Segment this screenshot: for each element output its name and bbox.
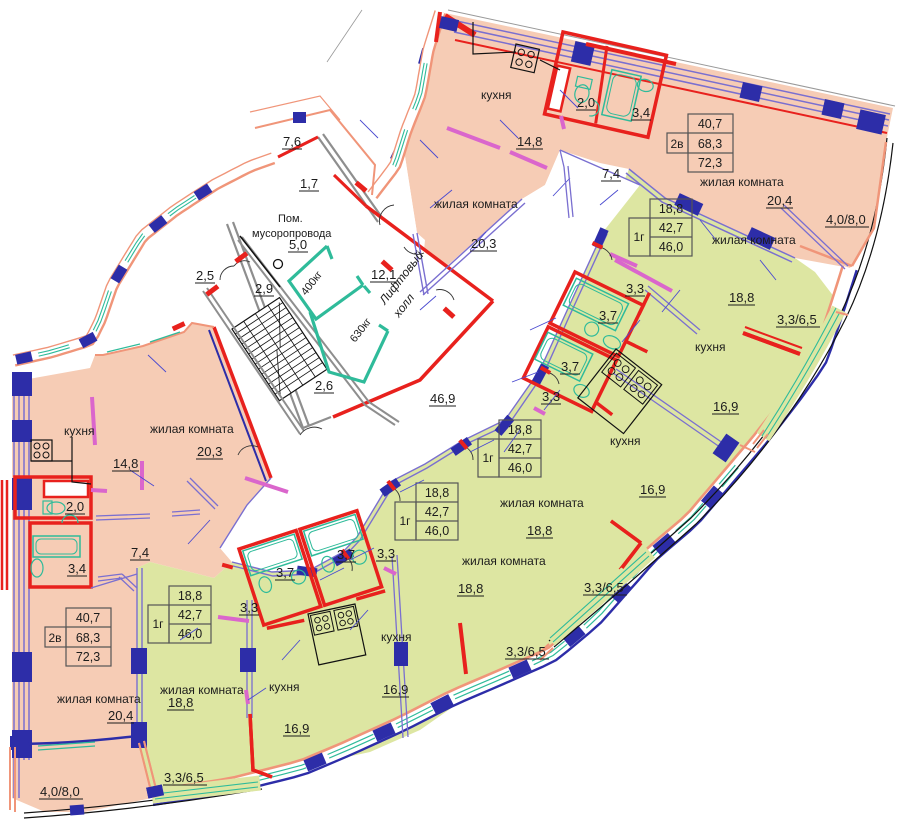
svg-text:2в: 2в [670, 137, 683, 151]
svg-text:2,9: 2,9 [255, 281, 273, 296]
svg-text:3,4: 3,4 [632, 105, 650, 120]
svg-text:3,3/6,5: 3,3/6,5 [777, 312, 817, 327]
svg-text:7,4: 7,4 [602, 166, 620, 181]
svg-text:18,8: 18,8 [508, 423, 532, 437]
svg-text:42,7: 42,7 [659, 221, 683, 235]
svg-text:4,0/8,0: 4,0/8,0 [826, 212, 866, 227]
svg-text:18,8: 18,8 [178, 589, 202, 603]
svg-text:3,7: 3,7 [276, 565, 294, 580]
svg-text:4,0/8,0: 4,0/8,0 [40, 784, 80, 799]
svg-text:42,7: 42,7 [178, 608, 202, 622]
svg-text:кухня: кухня [269, 680, 300, 694]
svg-text:жилая комната: жилая комната [150, 422, 234, 436]
svg-text:2в: 2в [48, 631, 61, 645]
svg-text:Пом.: Пом. [278, 213, 303, 225]
svg-text:1г: 1г [399, 514, 411, 528]
svg-text:20,3: 20,3 [471, 236, 496, 251]
svg-text:72,3: 72,3 [698, 156, 722, 170]
svg-text:18,8: 18,8 [659, 202, 683, 216]
svg-text:16,9: 16,9 [713, 399, 738, 414]
svg-text:5,0: 5,0 [289, 237, 307, 252]
svg-text:20,4: 20,4 [767, 193, 792, 208]
svg-text:3,3: 3,3 [626, 281, 644, 296]
svg-text:1,7: 1,7 [300, 176, 318, 191]
svg-text:16,9: 16,9 [284, 721, 309, 736]
svg-text:68,3: 68,3 [698, 137, 722, 151]
svg-text:18,8: 18,8 [425, 486, 449, 500]
svg-text:14,8: 14,8 [113, 456, 138, 471]
svg-text:46,0: 46,0 [425, 524, 449, 538]
svg-text:жилая комната: жилая комната [434, 197, 518, 211]
svg-text:46,0: 46,0 [659, 240, 683, 254]
svg-text:16,9: 16,9 [640, 482, 665, 497]
svg-text:2,6: 2,6 [315, 378, 333, 393]
svg-text:18,8: 18,8 [729, 290, 754, 305]
svg-text:2,0: 2,0 [66, 499, 84, 514]
svg-text:3,7: 3,7 [337, 547, 355, 562]
svg-text:18,8: 18,8 [458, 581, 483, 596]
svg-text:42,7: 42,7 [425, 505, 449, 519]
svg-text:жилая комната: жилая комната [500, 496, 584, 510]
svg-text:3,7: 3,7 [561, 359, 579, 374]
svg-text:3,3/6,5: 3,3/6,5 [164, 770, 204, 785]
svg-text:кухня: кухня [695, 340, 726, 354]
svg-text:7,6: 7,6 [283, 134, 301, 149]
svg-text:7,4: 7,4 [131, 545, 149, 560]
svg-text:72,3: 72,3 [76, 650, 100, 664]
svg-text:1г: 1г [152, 617, 164, 631]
svg-text:18,8: 18,8 [527, 523, 552, 538]
svg-text:кухня: кухня [64, 424, 95, 438]
svg-text:46,9: 46,9 [430, 391, 455, 406]
svg-text:кухня: кухня [610, 434, 641, 448]
svg-text:42,7: 42,7 [508, 442, 532, 456]
svg-text:20,3: 20,3 [197, 444, 222, 459]
svg-text:16,9: 16,9 [383, 682, 408, 697]
svg-text:68,3: 68,3 [76, 631, 100, 645]
svg-text:20,4: 20,4 [108, 708, 133, 723]
svg-text:3,4: 3,4 [68, 561, 86, 576]
svg-text:1г: 1г [482, 451, 494, 465]
svg-text:3,3/6,5: 3,3/6,5 [584, 580, 624, 595]
svg-text:2,0: 2,0 [577, 95, 595, 110]
svg-text:1г: 1г [633, 230, 645, 244]
svg-text:кухня: кухня [481, 88, 512, 102]
svg-text:3,7: 3,7 [599, 308, 617, 323]
svg-text:46,0: 46,0 [508, 461, 532, 475]
svg-text:3,3: 3,3 [240, 600, 258, 615]
svg-text:жилая комната: жилая комната [700, 175, 784, 189]
svg-text:2,5: 2,5 [196, 268, 214, 283]
svg-text:жилая комната: жилая комната [57, 692, 141, 706]
svg-text:кухня: кухня [381, 630, 412, 644]
svg-text:14,8: 14,8 [517, 134, 542, 149]
svg-text:жилая комната: жилая комната [712, 233, 796, 247]
svg-text:3,3: 3,3 [542, 389, 560, 404]
svg-text:18,8: 18,8 [168, 695, 193, 710]
svg-text:3,3: 3,3 [377, 546, 395, 561]
svg-text:40,7: 40,7 [698, 117, 722, 131]
svg-text:3,3/6,5: 3,3/6,5 [506, 644, 546, 659]
svg-text:жилая комната: жилая комната [462, 554, 546, 568]
svg-text:40,7: 40,7 [76, 611, 100, 625]
